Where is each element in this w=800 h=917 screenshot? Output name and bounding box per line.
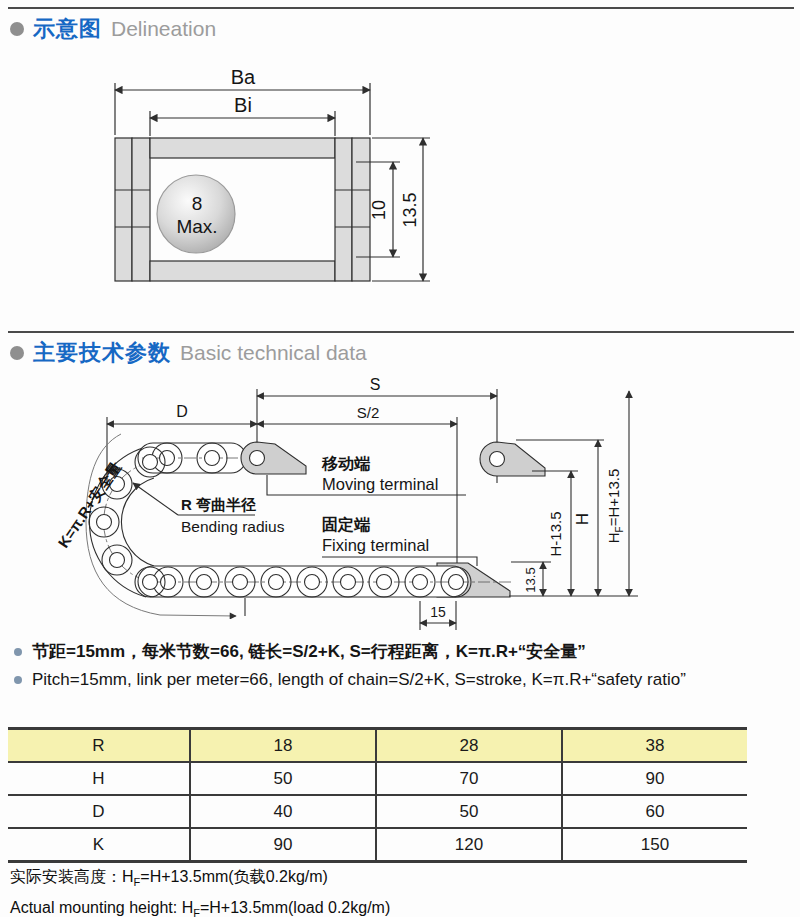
dim-label-bracket-13-5: 13.5: [523, 567, 538, 592]
fixing-terminal-label-en: Fixing terminal: [322, 536, 429, 554]
header-cell-38: 38: [561, 730, 747, 761]
header-cell-28: 28: [375, 730, 561, 761]
moving-terminal-label-zh: 移动端: [321, 455, 371, 472]
table-cell: D: [8, 796, 189, 827]
pitch-note-en: Pitch=15mm, link per meter=66, length of…: [14, 670, 686, 690]
table-cell: 90: [561, 763, 747, 794]
dim-label-13-5: 13.5: [400, 192, 420, 227]
cable-ball: [157, 175, 235, 253]
dim-label-h-minus-13-5: H-13.5: [547, 511, 564, 556]
ball-label-max: Max.: [176, 216, 217, 237]
dim-label-s-half: S/2: [357, 404, 380, 421]
spec-table: R 18 28 38 H 50 70 90 D 40 50 60 K 90 12…: [8, 727, 747, 863]
table-cell: H: [8, 763, 189, 794]
pitch-note-zh: 节距=15mm，每米节数=66, 链长=S/2+K, S=行程距离，K=π.R+…: [14, 640, 586, 663]
dim-label-10: 10: [369, 200, 389, 220]
ball-label-max-diameter: 8: [192, 193, 203, 214]
table-cell: 50: [189, 763, 375, 794]
table-cell: 90: [189, 829, 375, 860]
bending-radius-label-en: Bending radius: [181, 518, 285, 535]
table-header-row: R 18 28 38: [8, 730, 747, 761]
table-cell: 70: [375, 763, 561, 794]
safety-curve-formula-label: K=π.R+安全量: [54, 458, 124, 550]
mounting-height-note: 实际安装高度：HF=H+13.5mm(负载0.2kg/m) Actual mou…: [10, 864, 390, 917]
table-cell: 150: [561, 829, 747, 860]
dim-label-bi: Bi: [234, 94, 252, 116]
note-bullet-icon: [14, 676, 22, 684]
table-cell: 50: [375, 796, 561, 827]
table-cell: K: [8, 829, 189, 860]
header-cell-r: R: [8, 730, 189, 761]
table-cell: 40: [189, 796, 375, 827]
note-bullet-icon: [14, 648, 22, 656]
catalog-page: 示意图 Delineation 主要技术参数 Basic technical d…: [0, 0, 800, 917]
dim-label-pitch-15: 15: [430, 604, 446, 620]
dim-label-d: D: [176, 403, 188, 420]
table-row-h: H 50 70 90: [8, 761, 747, 794]
dim-label-ba: Ba: [231, 66, 256, 88]
pitch-note-zh-text: 节距=15mm，每米节数=66, 链长=S/2+K, S=行程距离，K=π.R+…: [32, 640, 586, 663]
table-row-d: D 40 50 60: [8, 794, 747, 827]
cross-section-drawing: [115, 83, 430, 281]
dim-label-h: H: [573, 513, 592, 525]
table-cell: 60: [561, 796, 747, 827]
table-cell: 120: [375, 829, 561, 860]
moving-terminal-label-en: Moving terminal: [322, 475, 438, 493]
fixing-terminal-label-zh: 固定端: [322, 516, 371, 533]
bending-radius-label-zh: R 弯曲半径: [181, 496, 256, 513]
mounting-height-note-en: Actual mounting height: HF=H+13.5mm(load…: [10, 895, 390, 917]
dim-label-s: S: [370, 376, 381, 393]
table-row-k: K 90 120 150: [8, 827, 747, 860]
pitch-note-en-text: Pitch=15mm, link per meter=66, length of…: [32, 670, 686, 690]
drag-chain-drawing: [86, 389, 638, 630]
mounting-height-note-zh: 实际安装高度：HF=H+13.5mm(负载0.2kg/m): [10, 864, 390, 895]
header-cell-18: 18: [189, 730, 375, 761]
dim-label-hf: HF=H+13.5: [605, 469, 625, 544]
